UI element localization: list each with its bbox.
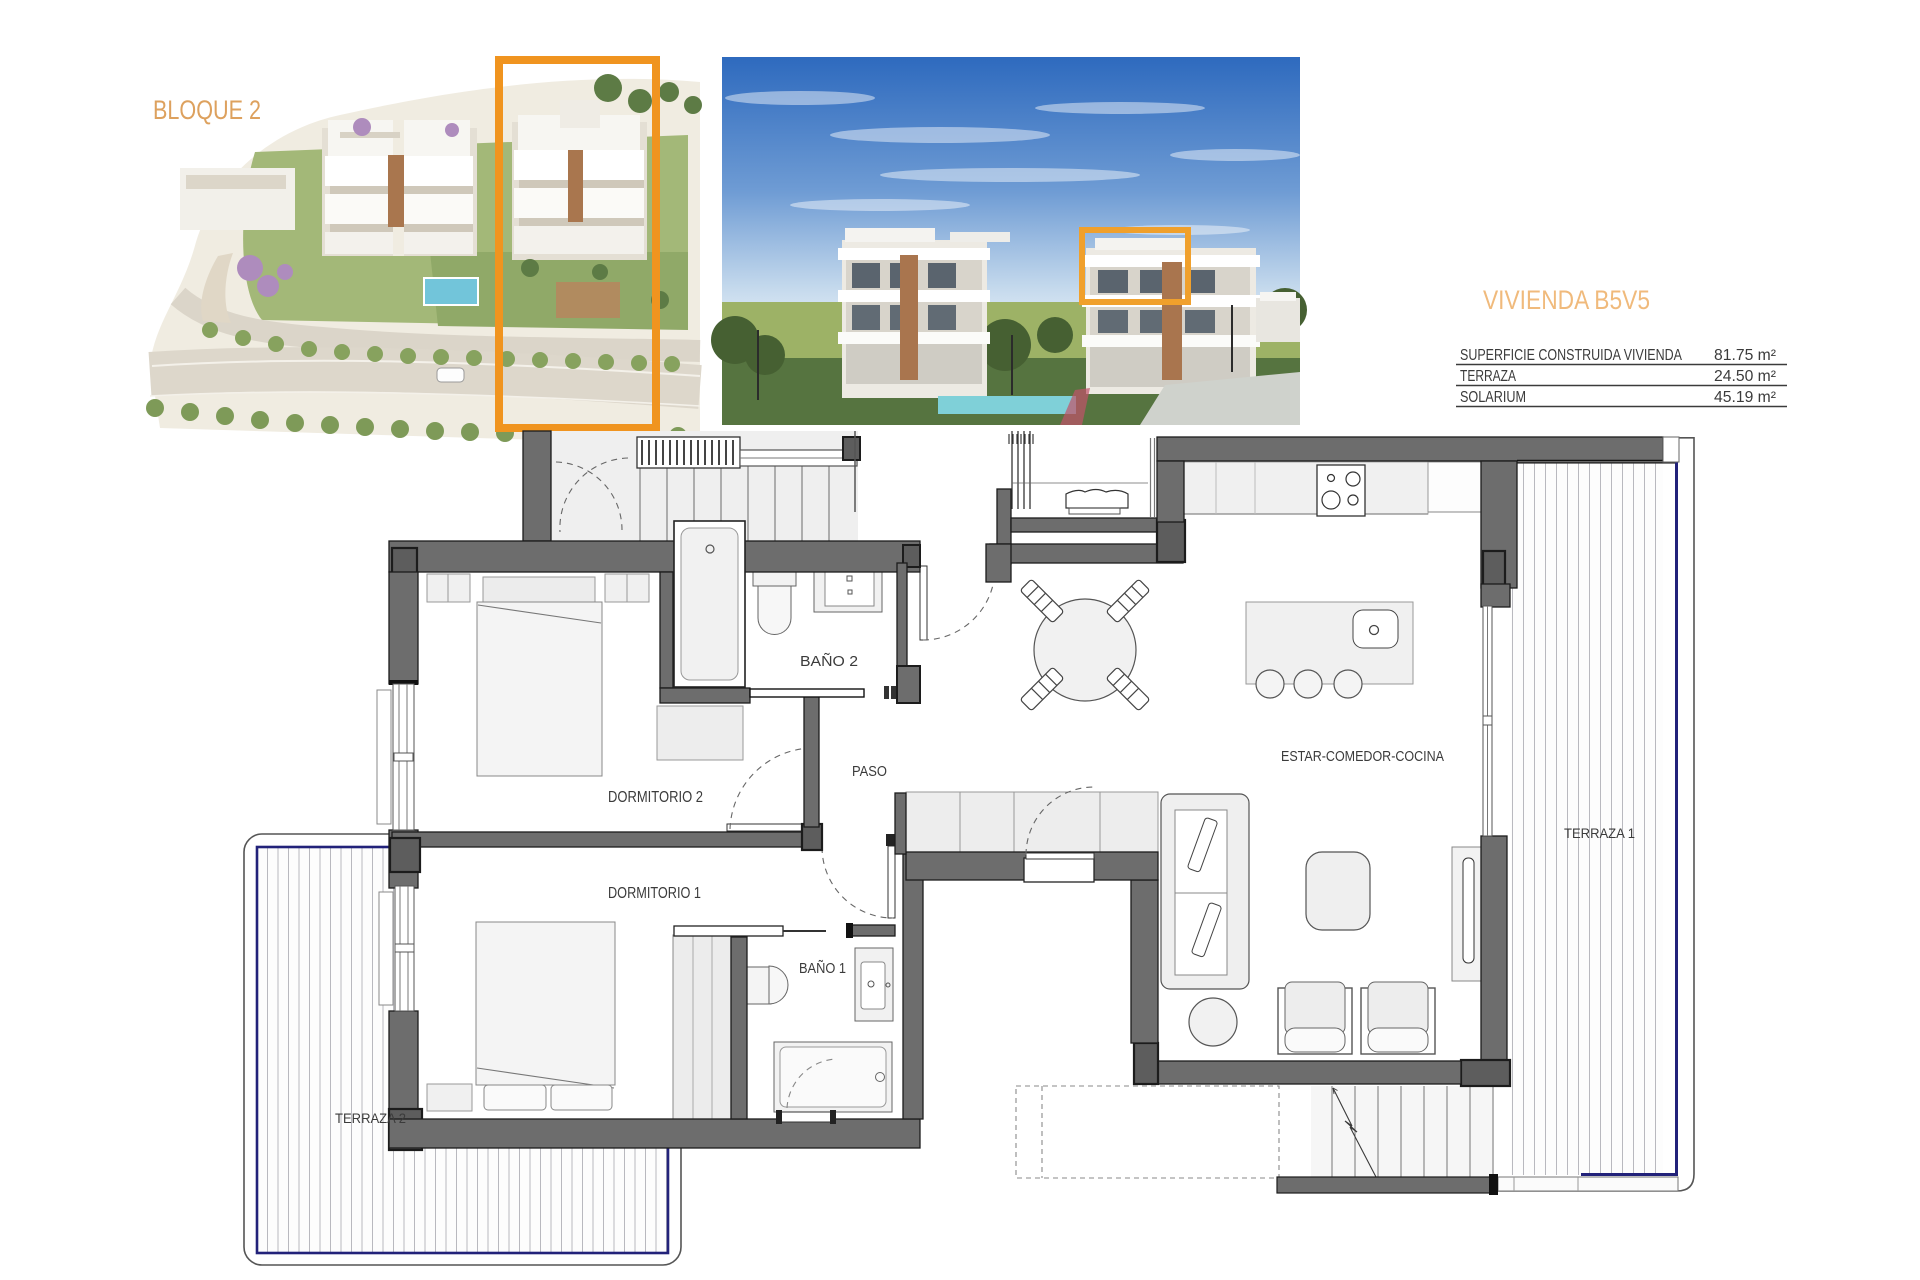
svg-text:BLOQUE 2: BLOQUE 2	[153, 95, 261, 125]
svg-text:24.50 m²: 24.50 m²	[1714, 368, 1776, 385]
svg-text:45.19 m²: 45.19 m²	[1714, 389, 1776, 406]
svg-text:TERRAZA 2: TERRAZA 2	[335, 1110, 406, 1126]
svg-text:TERRAZA 1: TERRAZA 1	[1564, 825, 1635, 841]
svg-text:DORMITORIO 1: DORMITORIO 1	[608, 885, 701, 902]
svg-text:ESTAR-COMEDOR-COCINA: ESTAR-COMEDOR-COCINA	[1281, 748, 1444, 765]
svg-text:PASO: PASO	[852, 764, 887, 780]
svg-text:SOLARIUM: SOLARIUM	[1460, 389, 1526, 406]
svg-text:BAÑO 1: BAÑO 1	[799, 960, 846, 977]
svg-text:TERRAZA: TERRAZA	[1460, 368, 1517, 385]
svg-text:SUPERFICIE CONSTRUIDA VIVIENDA: SUPERFICIE CONSTRUIDA VIVIENDA	[1460, 347, 1683, 364]
svg-text:DORMITORIO 2: DORMITORIO 2	[608, 789, 703, 806]
svg-text:VIVIENDA B5V5: VIVIENDA B5V5	[1483, 285, 1650, 315]
svg-text:81.75 m²: 81.75 m²	[1714, 347, 1776, 364]
svg-text:BAÑO 2: BAÑO 2	[800, 653, 858, 670]
